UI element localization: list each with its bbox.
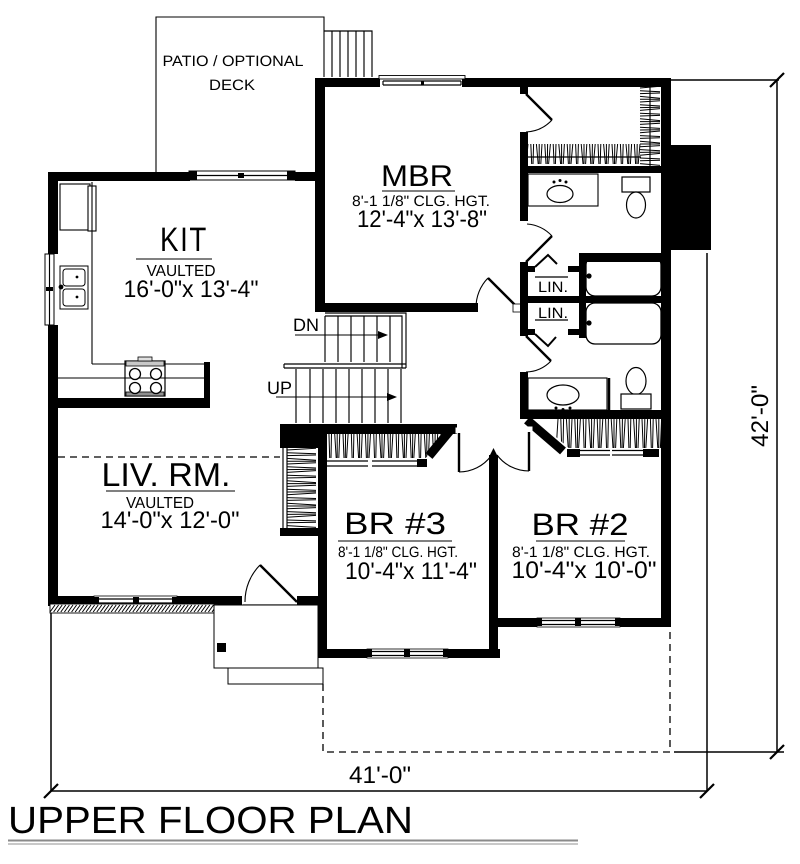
svg-text:DN: DN: [293, 315, 319, 335]
svg-text:UPPER FLOOR PLAN: UPPER FLOOR PLAN: [8, 800, 413, 842]
svg-text:12'-4"x 13'-8": 12'-4"x 13'-8": [357, 206, 487, 233]
svg-text:DECK: DECK: [209, 77, 255, 94]
svg-text:BR #2: BR #2: [532, 507, 629, 542]
svg-text:MBR: MBR: [381, 160, 453, 193]
svg-text:14'-0"x 12'-0": 14'-0"x 12'-0": [101, 507, 240, 534]
svg-text:10'-4"x 11'-4": 10'-4"x 11'-4": [345, 558, 477, 585]
svg-text:UP: UP: [267, 378, 292, 398]
svg-text:BR #3: BR #3: [344, 506, 446, 541]
svg-text:10'-4"x 10'-0": 10'-4"x 10'-0": [512, 557, 657, 584]
svg-text:41'-0": 41'-0": [349, 762, 411, 789]
svg-text:LIN.: LIN.: [538, 305, 568, 322]
svg-text:42'-0": 42'-0": [747, 385, 774, 447]
svg-text:16'-0"x 13'-4": 16'-0"x 13'-4": [124, 276, 259, 303]
svg-text:PATIO / OPTIONAL: PATIO / OPTIONAL: [163, 53, 304, 70]
svg-text:LIN.: LIN.: [538, 279, 568, 296]
svg-text:KIT: KIT: [160, 221, 208, 259]
svg-text:LIV. RM.: LIV. RM.: [102, 456, 231, 493]
